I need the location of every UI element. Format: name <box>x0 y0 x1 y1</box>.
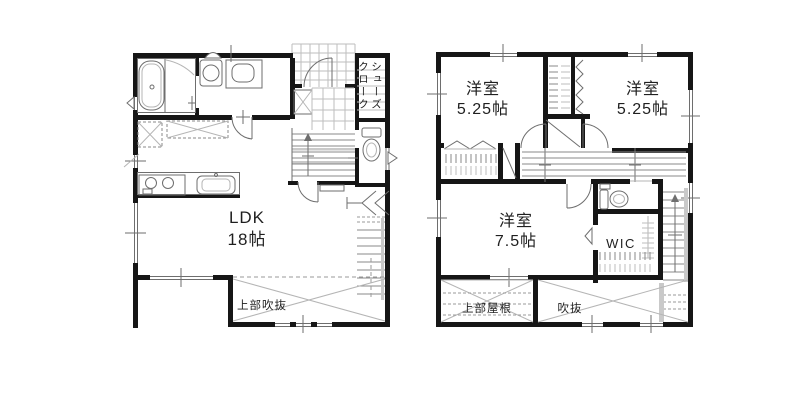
room-top-left-label: 洋室 5.25帖 <box>438 80 528 120</box>
room-top-left-size: 5.25帖 <box>438 100 528 120</box>
room-top-left-name: 洋室 <box>438 80 528 100</box>
right-vent-triangle <box>388 152 397 164</box>
stairs-main-1f <box>292 134 355 176</box>
shoes-closet-label-right: シューズ <box>369 61 384 111</box>
stairs-2f <box>659 188 688 322</box>
kitchen-stove <box>139 175 185 195</box>
stair-tread-shade <box>292 148 355 151</box>
floorplan-drawing <box>0 0 800 400</box>
entrance-porch-tiles <box>292 44 355 87</box>
closet-2f-left <box>444 141 516 178</box>
washing-machine <box>200 60 222 86</box>
floorplan-page: LDK 18帖 上部吹抜 シューズ クローク 洋室 5.25帖 洋室 5.25帖… <box>0 0 800 400</box>
kitchen-sink <box>197 174 235 195</box>
left-vent-triangle <box>127 97 134 109</box>
ceiling-dashed-boxes <box>138 121 228 147</box>
toilet-1f <box>348 128 381 161</box>
bathroom <box>138 59 196 113</box>
hallway-stairs-2f <box>522 152 686 176</box>
void-above-label-1f: 上部吹抜 <box>230 297 294 313</box>
room-top-right-size: 5.25帖 <box>598 100 688 120</box>
door-arcs-2f <box>521 124 652 208</box>
ldk-name: LDK <box>204 207 290 229</box>
room-main-size: 7.5帖 <box>471 232 561 252</box>
room-top-right-label: 洋室 5.25帖 <box>598 80 688 120</box>
ldk-size: 18帖 <box>204 229 290 251</box>
room-top-right-name: 洋室 <box>598 80 688 100</box>
room-main-label: 洋室 7.5帖 <box>471 212 561 252</box>
void-label-2f: 吹抜 <box>540 300 600 316</box>
stair-tread-shade <box>292 161 355 164</box>
under-stair-storage <box>294 90 312 114</box>
toilet-2f <box>600 184 628 209</box>
shoes-closet-label-left: クローク <box>356 61 371 111</box>
ldk-label: LDK 18帖 <box>204 207 290 251</box>
room-main-name: 洋室 <box>471 212 561 232</box>
wic-label: WIC <box>598 236 644 251</box>
closet-2f-center <box>546 60 583 147</box>
stair-landing-grid <box>312 88 354 130</box>
vanity-sink <box>226 60 262 88</box>
roof-above-label: 上部屋根 <box>455 300 519 316</box>
wic-door-triangle <box>585 228 592 244</box>
